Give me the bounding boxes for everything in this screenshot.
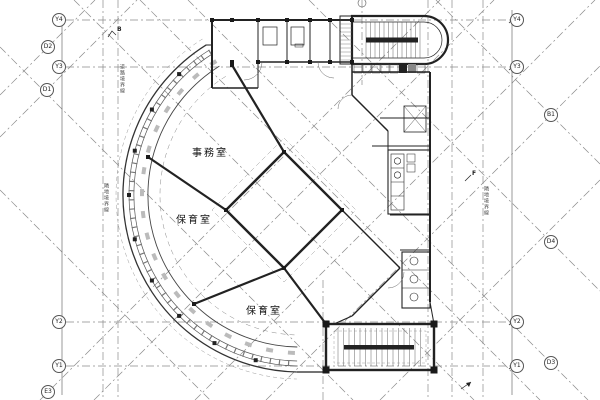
boundary-label-site-right: 隣地境界線 xyxy=(483,186,490,216)
boundary-label-road: 道路境界線 xyxy=(119,64,126,94)
grid-bubble-y3-left: Y3 xyxy=(52,60,66,74)
grid-bubble-b1-right: B1 xyxy=(544,108,558,122)
grid-bubble-d3-right: D3 xyxy=(544,356,558,370)
grid-bubble-d4-right: D4 xyxy=(544,235,558,249)
section-letter-b: B xyxy=(117,26,122,33)
grid-bubble-y2-left: Y2 xyxy=(52,315,66,329)
section-mark-f xyxy=(465,175,471,181)
door-swings xyxy=(244,62,404,288)
grid-bubble-y3-right: Y3 xyxy=(510,60,524,74)
grid-bubble-e3-left: E3 xyxy=(41,385,55,399)
south-stair xyxy=(323,321,438,374)
kitchen xyxy=(388,150,430,214)
grid-bubble-y4-left: Y4 xyxy=(52,13,66,27)
stair-landing xyxy=(366,38,418,43)
floor-plan-canvas: Y4 D2 Y3 D1 Y2 Y1 E3 Y4 Y3 B1 D4 Y2 Y1 D… xyxy=(0,0,600,400)
boundary-label-site-left: 隣地境界線 xyxy=(103,183,110,213)
east-wing xyxy=(352,72,434,324)
grid-bubble-y1-left: Y1 xyxy=(52,359,66,373)
stair-landing xyxy=(344,345,414,350)
eave-line xyxy=(116,39,297,379)
shaft xyxy=(291,27,304,45)
grid-lines xyxy=(0,0,600,400)
curved-wing xyxy=(116,39,298,379)
toilets xyxy=(402,252,430,308)
grid-bubble-d1-left: D1 xyxy=(40,83,54,97)
floor-plan-drawing xyxy=(0,0,600,400)
section-letter-f: F xyxy=(472,170,476,177)
grid-bubble-y1-right: Y1 xyxy=(510,359,524,373)
grid-bubble-y2-right: Y2 xyxy=(510,315,524,329)
grid-bubble-d2-left: D2 xyxy=(41,40,55,54)
north-stair xyxy=(340,16,448,64)
room-label-nursery-2: 保育室 xyxy=(246,302,282,317)
section-mark-b xyxy=(108,31,116,37)
room-label-nursery-1: 保育室 xyxy=(176,211,212,226)
room-label-office: 事務室 xyxy=(192,144,228,159)
shaft xyxy=(263,27,277,45)
annotation-marks xyxy=(108,31,471,389)
grid-bubble-y4-right: Y4 xyxy=(510,13,524,27)
